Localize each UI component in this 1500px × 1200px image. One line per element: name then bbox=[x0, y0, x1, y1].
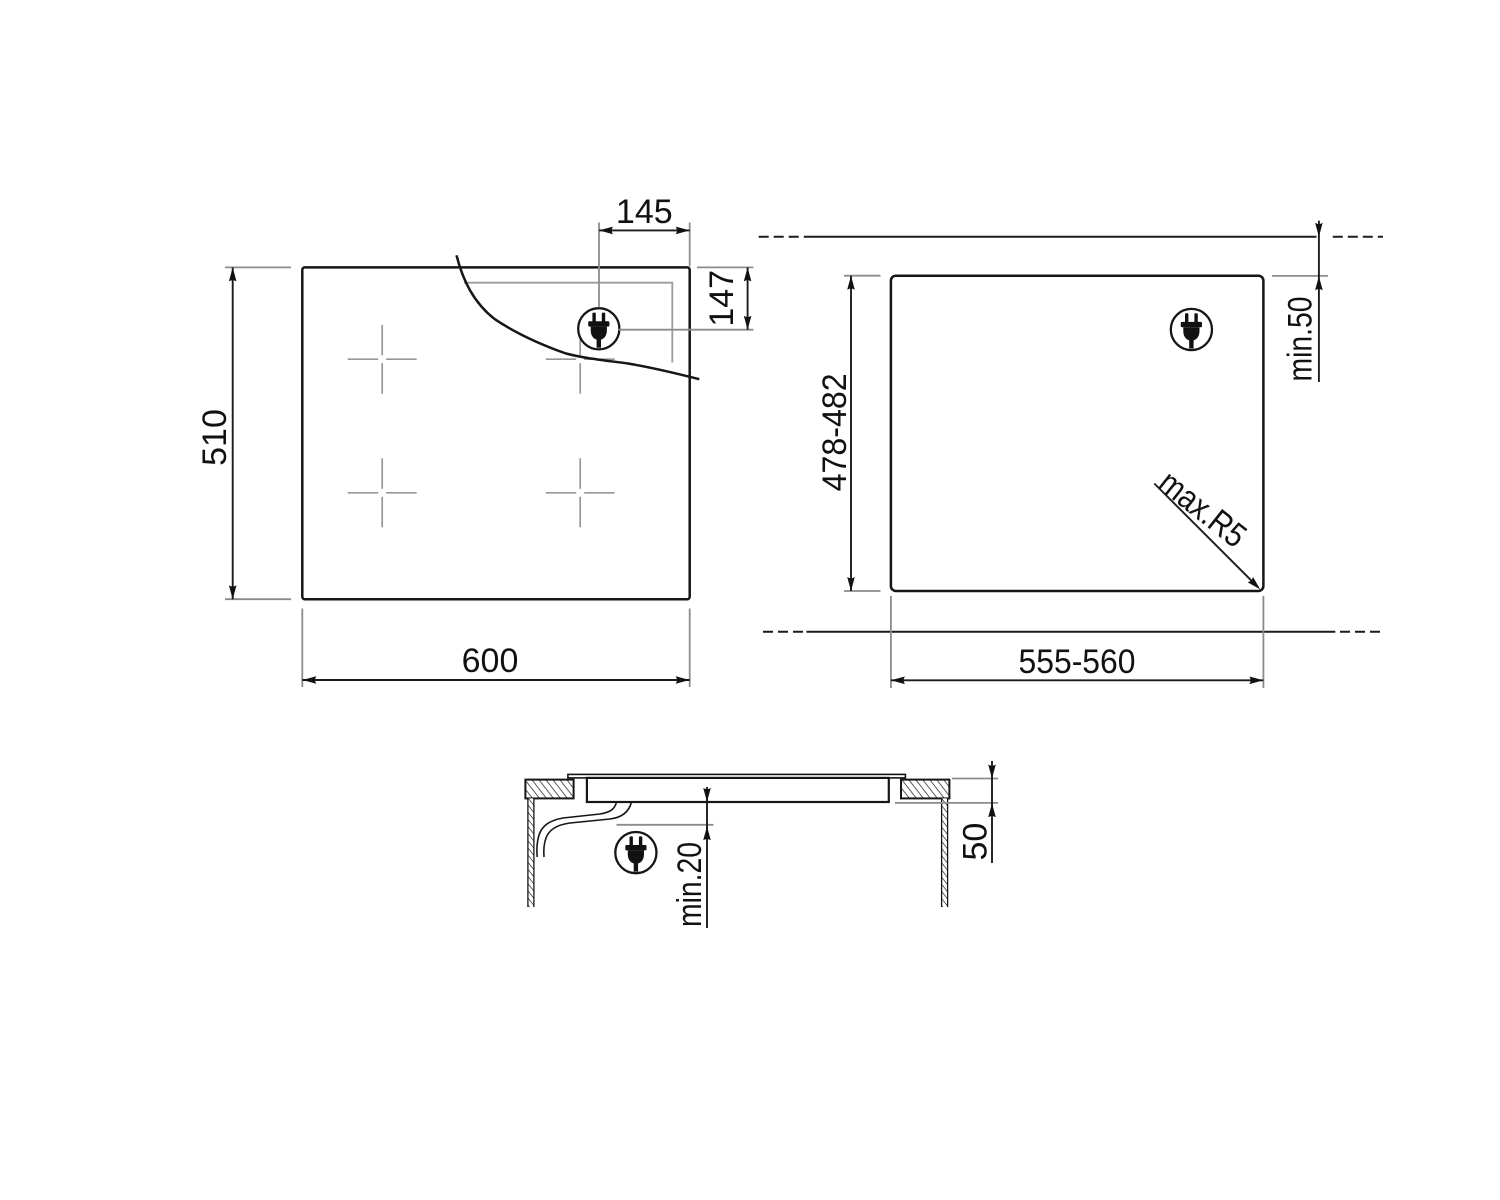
svg-text:510: 510 bbox=[196, 409, 234, 466]
svg-text:555-560: 555-560 bbox=[1019, 643, 1136, 681]
svg-text:145: 145 bbox=[616, 193, 673, 231]
svg-text:147: 147 bbox=[703, 270, 741, 327]
svg-text:min.50: min.50 bbox=[1282, 297, 1320, 382]
svg-text:min.20: min.20 bbox=[671, 842, 709, 927]
svg-text:600: 600 bbox=[462, 642, 519, 680]
svg-text:478-482: 478-482 bbox=[816, 373, 854, 491]
svg-text:50: 50 bbox=[957, 823, 995, 861]
